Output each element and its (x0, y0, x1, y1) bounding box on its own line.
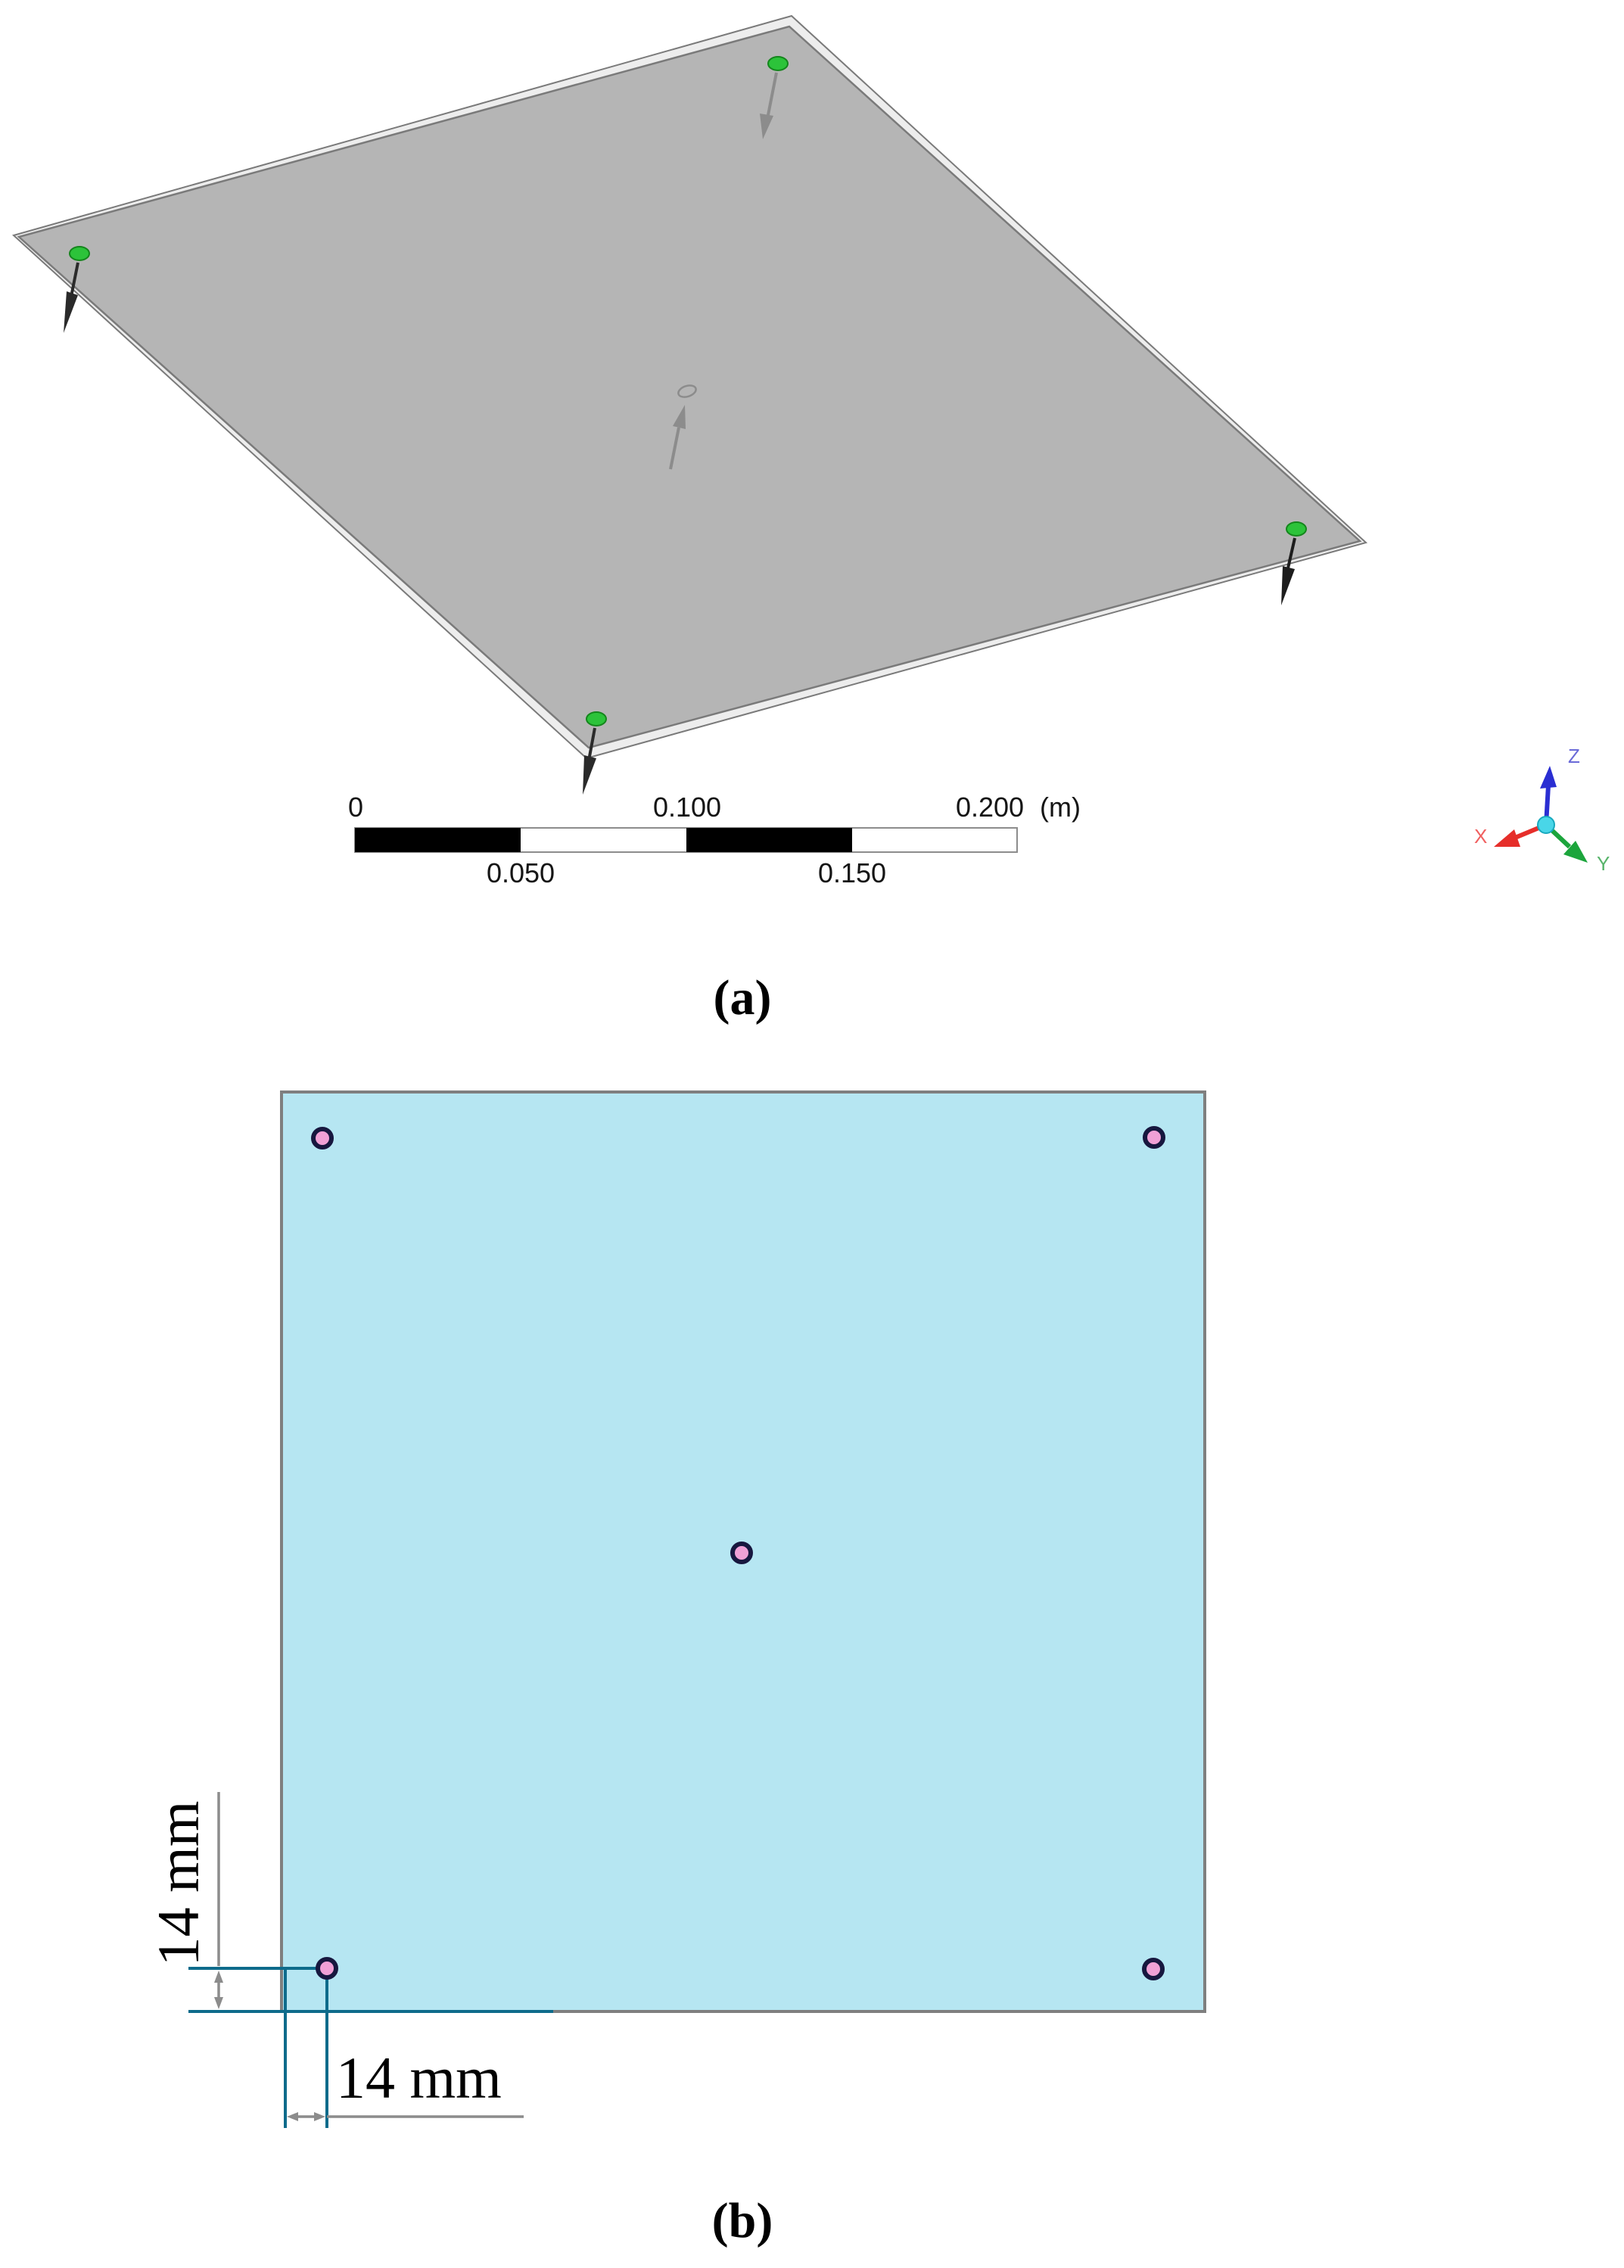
figure-b: 14 mm 14 mm (b) (145, 1092, 1205, 2248)
figure-b-label: (b) (712, 2193, 773, 2248)
scale-tick-150: 0.150 (818, 857, 886, 888)
scale-tick-0: 0 (348, 792, 363, 823)
z-axis-label: Z (1568, 745, 1580, 767)
hole-center (733, 1544, 751, 1562)
dim-label-bottom: 14 mm (336, 2045, 502, 2111)
hole-top-left (313, 1129, 331, 1147)
scale-bar-segment-3 (686, 828, 852, 852)
dim-arrowhead-left (287, 2112, 298, 2121)
x-axis-label: X (1474, 825, 1487, 848)
dim-arrowhead-up (214, 1971, 223, 1983)
corner-point-top (768, 57, 788, 70)
hole-top-right (1145, 1128, 1163, 1146)
figure-page: 0 0.100 0.200 (m) 0.050 0.150 Z X (0, 0, 1624, 2268)
corner-point-bottom (586, 712, 606, 726)
hole-bottom-right (1144, 1960, 1162, 1978)
dim-arrowhead-down (214, 1997, 223, 2009)
triad-origin-ball (1538, 817, 1554, 833)
scale-tick-100: 0.100 (653, 792, 721, 823)
figure-a: 0 0.100 0.200 (m) 0.050 0.150 Z X (14, 16, 1610, 1025)
corner-point-right (1286, 522, 1306, 536)
hole-bottom-left (318, 1959, 336, 1977)
scale-tick-050: 0.050 (487, 857, 555, 888)
coordinate-triad: Z X Y (1474, 745, 1610, 875)
corner-point-left (70, 247, 89, 260)
scale-bar: 0 0.100 0.200 (m) 0.050 0.150 (348, 792, 1081, 888)
dim-label-left: 14 mm (145, 1801, 211, 1967)
scale-unit: (m) (1040, 792, 1081, 823)
plate-top-surface (19, 26, 1360, 748)
scale-tick-200: 0.200 (956, 792, 1024, 823)
z-axis (1540, 766, 1557, 825)
scale-bar-segment-1 (355, 828, 521, 852)
dim-arrowhead-right (314, 2112, 325, 2121)
y-axis-label: Y (1597, 852, 1610, 875)
figure-a-label: (a) (714, 970, 772, 1025)
